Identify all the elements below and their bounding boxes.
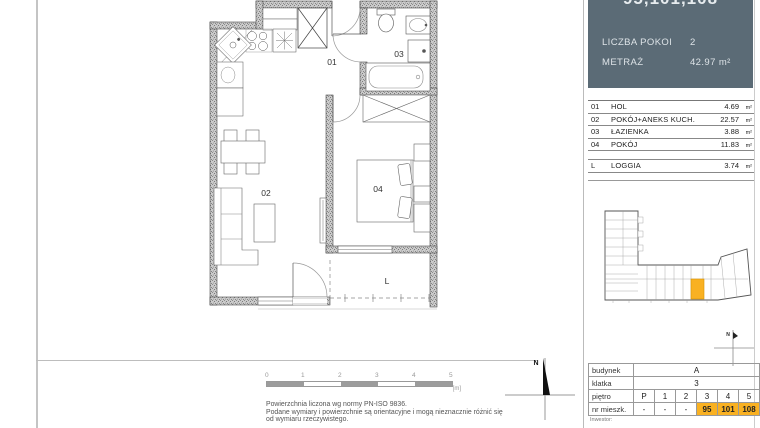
sofa-icon: [214, 188, 258, 265]
kitchen-counter: [215, 27, 296, 116]
budynek-value: A: [634, 364, 760, 377]
pietro-cell: 3: [697, 390, 718, 403]
list-spacer: [588, 173, 754, 181]
scale-tick: 3: [375, 372, 379, 379]
room-area: 3.88: [705, 127, 739, 136]
room-area: 22.57: [705, 115, 739, 124]
scale-tick: 4: [412, 372, 416, 379]
area-label: METRAŻ: [602, 57, 690, 68]
scale-unit: [m]: [453, 386, 461, 392]
room-name: POKÓJ+ANEKS KUCH.: [611, 115, 705, 124]
mieszkanie-cell: -: [634, 403, 655, 416]
klatka-value: 3: [634, 377, 760, 390]
pietro-cell: 2: [676, 390, 697, 403]
rooms-count-value: 2: [690, 37, 696, 48]
room-number: 04: [588, 140, 611, 149]
pietro-cell: 5: [739, 390, 760, 403]
bedroom-furniture: [357, 95, 430, 232]
scale-bar: 0 1 2 3 4 5 [m]: [266, 372, 453, 394]
room-name: POKÓJ: [611, 140, 705, 149]
room-area: 3.74: [705, 161, 739, 170]
scale-tick: 1: [301, 372, 305, 379]
window-symbols: [258, 246, 392, 305]
scale-tick: 2: [338, 372, 342, 379]
coffee-table-icon: [254, 204, 275, 242]
toilet-icon: [377, 9, 395, 32]
apartment-header: 95,101,108 LICZBA POKOI 2 METRAŻ 42.97 m…: [588, 0, 753, 88]
room-number: 03: [588, 127, 611, 136]
mieszkanie-cell: -: [676, 403, 697, 416]
dining-table-icon: [221, 130, 265, 174]
page-left-border: [36, 0, 38, 428]
building-site-plan: [593, 207, 753, 312]
klatka-label: klatka: [589, 377, 634, 390]
panel-left-border: [583, 0, 584, 428]
nightstand: [414, 144, 430, 161]
mieszkanie-cell-highlighted: 108: [739, 403, 760, 416]
mieszkanie-label: nr mieszk.: [589, 403, 634, 416]
rooms-count-label: LICZBA POKOI: [602, 37, 690, 48]
entry-cabinets: [263, 8, 297, 30]
pietro-cell: 4: [718, 390, 739, 403]
north-label: N: [533, 360, 538, 367]
room-number: L: [588, 161, 611, 170]
room-label-living: 02: [261, 188, 271, 198]
room-area-unit: m²: [739, 105, 754, 111]
scale-tick: 0: [265, 372, 269, 379]
apartment-numbers-title: 95,101,108: [588, 0, 753, 9]
room-area-unit: m²: [739, 130, 754, 136]
cooker-hood: [273, 29, 296, 52]
room-number: 02: [588, 115, 611, 124]
room-name: HOL: [611, 102, 705, 111]
footer-divider: [36, 360, 537, 361]
room-area: 4.69: [705, 102, 739, 111]
room-area: 11.83: [705, 140, 739, 149]
pietro-cell: 1: [655, 390, 676, 403]
room-label-bedroom: 04: [373, 184, 383, 194]
shaft-box: [298, 8, 327, 48]
dresser: [414, 204, 430, 232]
wardrobe-icon: [363, 95, 430, 122]
pietro-cell: P: [634, 390, 655, 403]
loggia-row: L LOGGIA 3.74 m²: [588, 160, 754, 173]
north-arrow: N: [498, 350, 578, 425]
bathtub-icon: [366, 63, 430, 91]
room-label-bath: 03: [394, 49, 404, 59]
bed-icon: [357, 160, 413, 222]
balcony-door-opening: [293, 297, 327, 305]
budynek-label: budynek: [589, 364, 634, 377]
room-area-unit: m²: [739, 143, 754, 149]
room-row: 02 POKÓJ+ANEKS KUCH. 22.57 m²: [588, 114, 754, 127]
scale-bar-segments: [266, 381, 453, 387]
mieszkanie-cell-highlighted: 101: [718, 403, 739, 416]
washer-icon: [408, 40, 430, 62]
pietro-label: piętro: [589, 390, 634, 403]
mieszkanie-cell: -: [655, 403, 676, 416]
room-name: LOGGIA: [611, 161, 705, 170]
room-area-table: 01 HOL 4.69 m² 02 POKÓJ+ANEKS KUCH. 22.5…: [588, 100, 754, 181]
room-area-unit: m²: [739, 118, 754, 124]
inwestor-label: Inwestor:: [590, 417, 612, 423]
room-row: 04 POKÓJ 11.83 m²: [588, 139, 754, 152]
nightstand: [414, 186, 430, 202]
room-label-hall: 01: [327, 57, 337, 67]
highlighted-unit: [691, 279, 704, 299]
mieszkanie-cell-highlighted: 95: [697, 403, 718, 416]
kitchen-cabinets: [217, 62, 243, 116]
room-row: 01 HOL 4.69 m²: [588, 101, 754, 114]
list-spacer: [588, 151, 754, 160]
room-number: 01: [588, 102, 611, 111]
tv-board-icon: [320, 198, 326, 243]
room-row: 03 ŁAZIENKA 3.88 m²: [588, 126, 754, 139]
floorplan-sheet: { "header": { "title": "95,101,108", "ro…: [0, 0, 760, 428]
room-label-loggia: L: [385, 276, 390, 286]
entry-opening: [332, 1, 360, 8]
room-name: ŁAZIENKA: [611, 127, 705, 136]
scale-tick: 5: [449, 372, 453, 379]
room-area-unit: m²: [739, 164, 754, 170]
building-info-table: budynek A klatka 3 piętro P 1 2 3 4 5 nr…: [588, 363, 760, 416]
north-label-small: N: [726, 332, 730, 338]
area-value: 42.97 m²: [690, 57, 731, 68]
washbasin-icon: [406, 16, 430, 34]
apartment-floorplan: 01 02 03 04 L: [195, 0, 455, 320]
